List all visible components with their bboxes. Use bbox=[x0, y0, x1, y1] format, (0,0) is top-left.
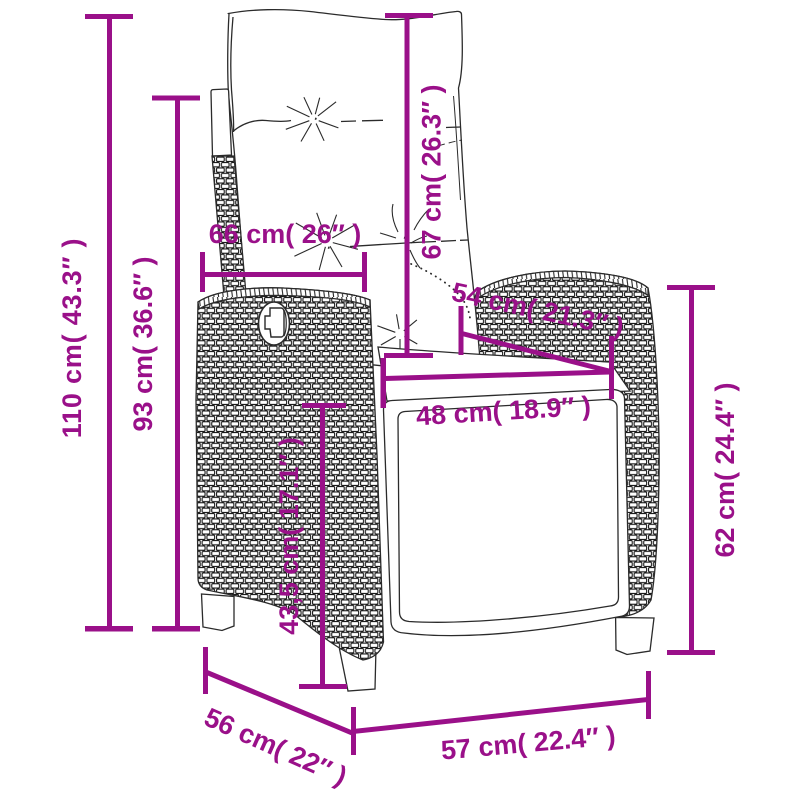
svg-text:110 cm( 43.3″ ): 110 cm( 43.3″ ) bbox=[57, 238, 87, 439]
svg-text:43,5 cm( 17.1″ ): 43,5 cm( 17.1″ ) bbox=[274, 437, 304, 635]
svg-text:93 cm( 36.6″ ): 93 cm( 36.6″ ) bbox=[128, 256, 158, 431]
svg-text:66 cm( 26″ ): 66 cm( 26″ ) bbox=[209, 219, 362, 249]
svg-text:67 cm( 26.3″ ): 67 cm( 26.3″ ) bbox=[417, 84, 447, 259]
svg-text:62 cm( 24.4″ ): 62 cm( 24.4″ ) bbox=[710, 382, 740, 557]
